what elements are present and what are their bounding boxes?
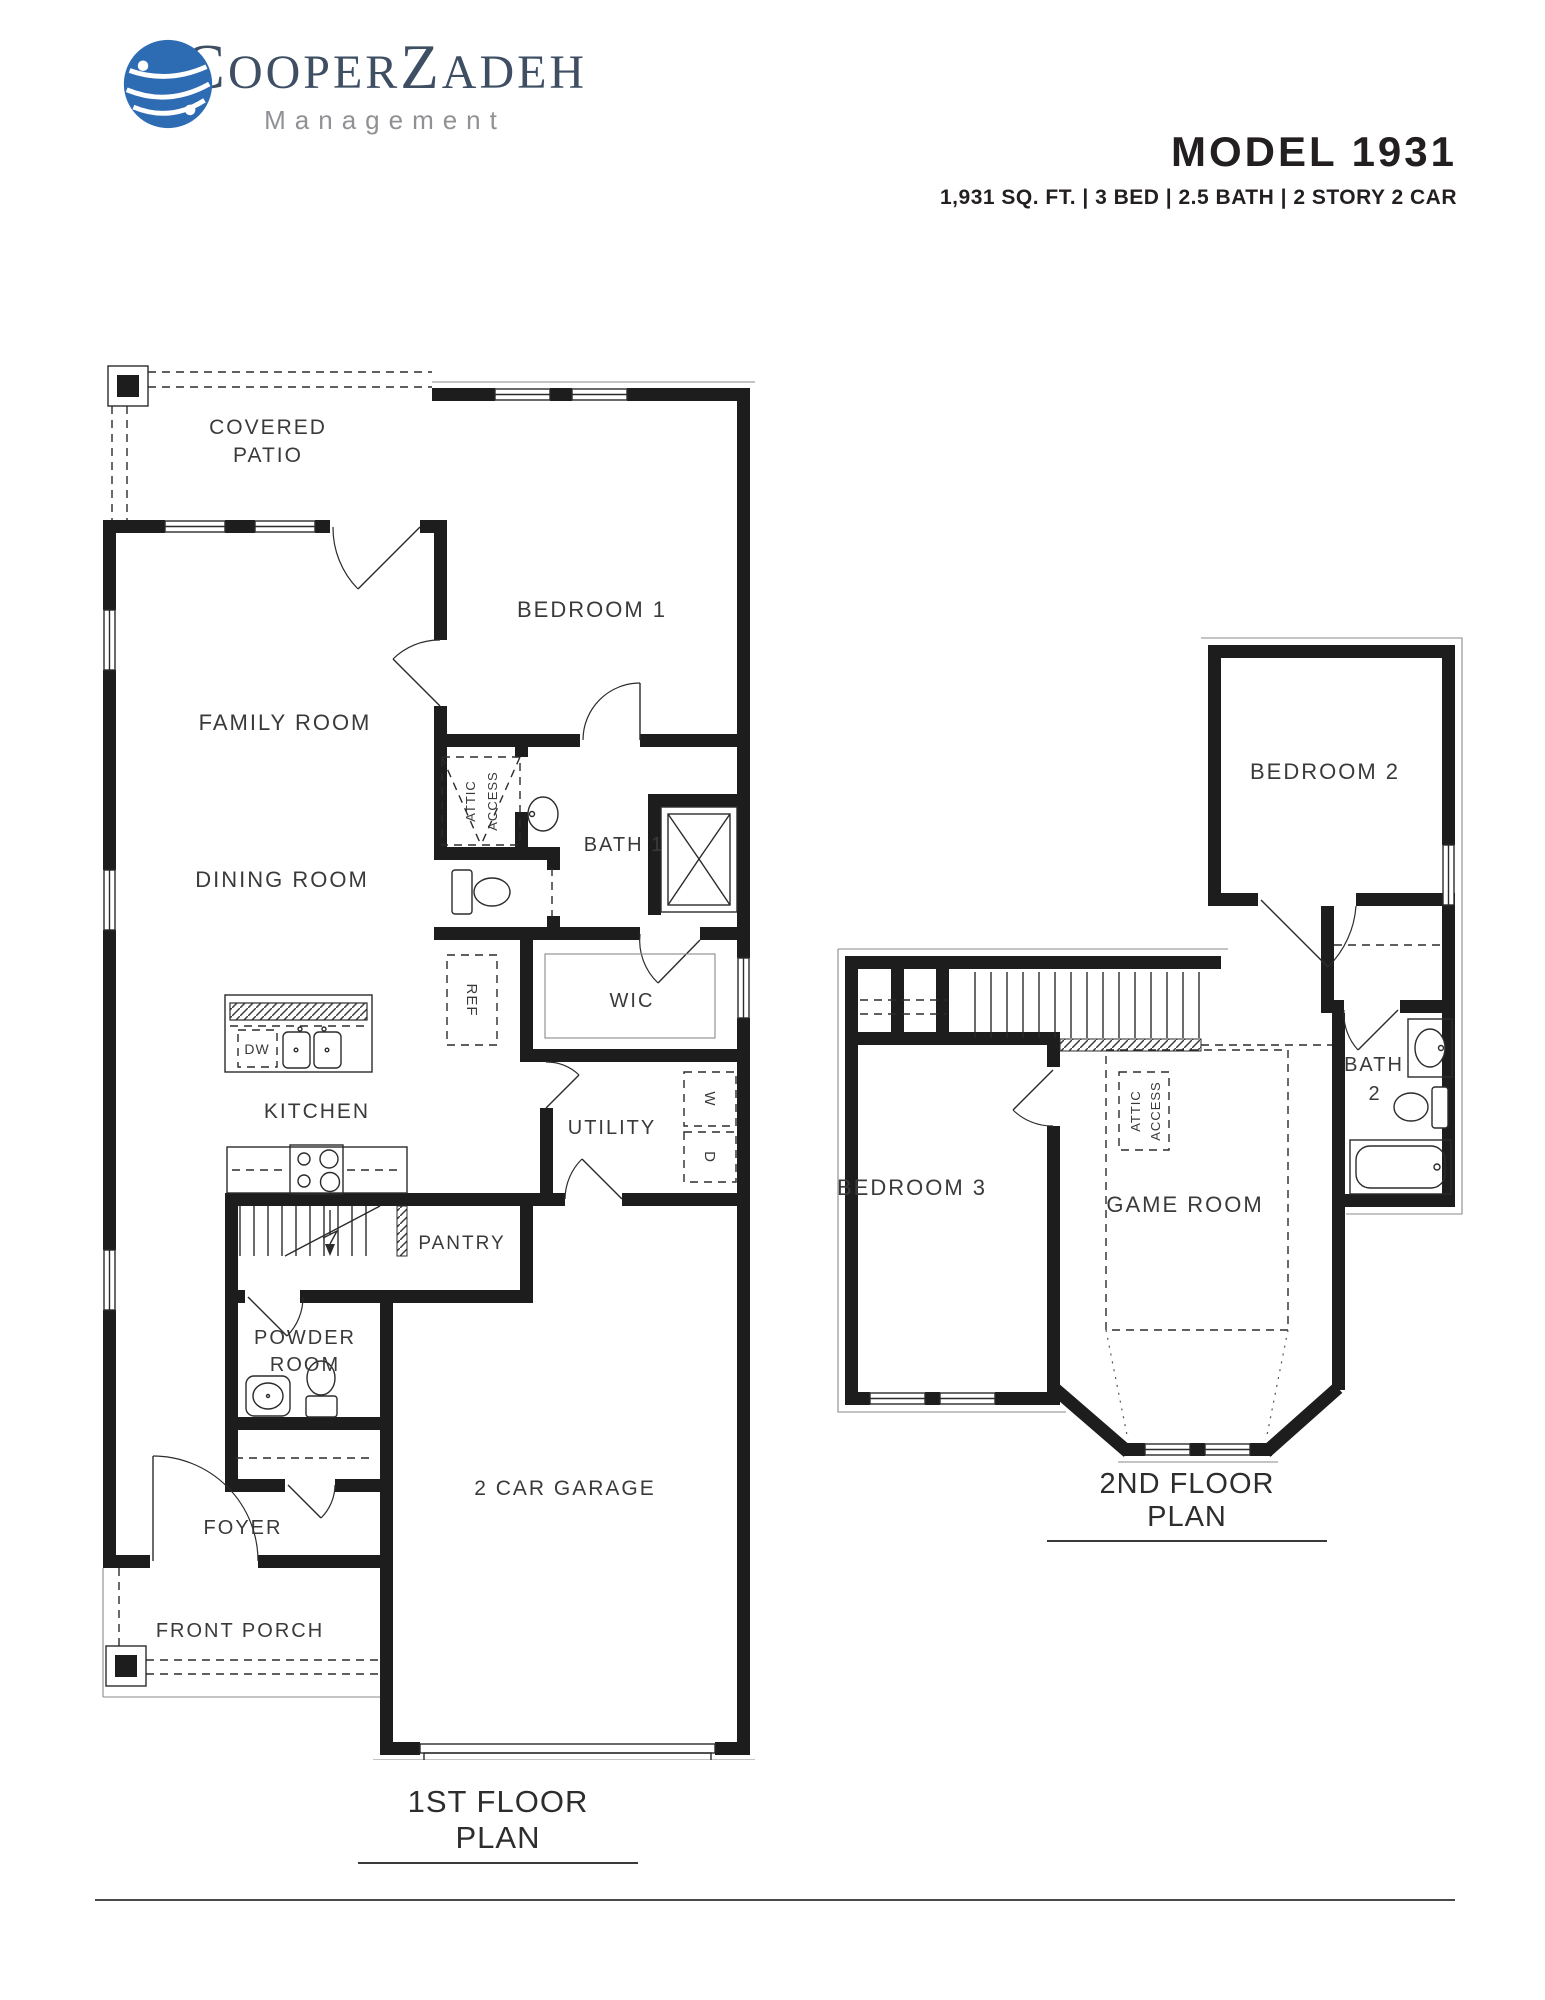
game-room-label: GAME ROOM	[1106, 1192, 1263, 1217]
window	[255, 521, 315, 532]
bedroom2-label: BEDROOM 2	[1250, 759, 1400, 784]
first-floor-plan-drawing: COVERED PATIO	[95, 355, 755, 1760]
dining-room-label: DINING ROOM	[195, 867, 369, 892]
front-porch-label: FRONT PORCH	[156, 1620, 324, 1642]
garage-entry-door	[565, 1159, 622, 1199]
attic-access-1-line1: ATTIC	[463, 780, 478, 822]
brand-adeh: ADEH	[442, 46, 587, 99]
covered-patio-label-line2: PATIO	[233, 444, 303, 467]
covered-patio-label-line1: COVERED	[209, 416, 327, 439]
model-title: MODEL 1931	[940, 128, 1457, 176]
window	[572, 389, 627, 400]
kitchen-island: DW	[225, 995, 372, 1072]
hall-door	[393, 640, 440, 706]
washer-label: W	[701, 1091, 718, 1106]
window	[1145, 1444, 1190, 1455]
stairs-first-floor	[240, 1206, 407, 1256]
footer-divider	[95, 1899, 1455, 1901]
window	[495, 389, 550, 400]
window	[1205, 1444, 1250, 1455]
brand-ooper: OOPER	[228, 46, 400, 99]
window	[1443, 845, 1454, 905]
first-floor-title-text: 1ST FLOOR PLAN	[358, 1784, 638, 1864]
attic-access-2-line2: ACCESS	[1148, 1081, 1163, 1140]
dishwasher-label: DW	[244, 1041, 269, 1057]
garage-door	[420, 1744, 715, 1760]
family-room-label: FAMILY ROOM	[199, 710, 372, 735]
front-door	[153, 1456, 258, 1561]
covered-patio: COVERED PATIO	[108, 366, 432, 520]
model-specs: 1,931 SQ. FT. | 3 BED | 2.5 BATH | 2 STO…	[940, 186, 1457, 210]
wic-label: WIC	[610, 990, 655, 1012]
garage-label: 2 CAR GARAGE	[474, 1477, 656, 1500]
window	[104, 1250, 115, 1310]
second-floor-title: 2ND FLOOR PLAN	[1047, 1468, 1327, 1542]
model-header: MODEL 1931 1,931 SQ. FT. | 3 BED | 2.5 B…	[940, 128, 1457, 210]
floor2-room-labels: BEDROOM 2 BEDROOM 3 GAME ROOM BATH 2	[837, 759, 1404, 1217]
bath1-label: BATH 1	[584, 834, 665, 856]
washer-box: W	[684, 1072, 736, 1126]
powder-room-label-line2: ROOM	[270, 1354, 340, 1376]
bath1-sink	[528, 797, 558, 831]
patio-door	[333, 527, 420, 589]
company-logo: COOPERZADEH Management	[120, 36, 650, 136]
bedroom1-door	[583, 683, 640, 740]
globe-icon	[120, 36, 216, 132]
second-floor-title-text: 2ND FLOOR PLAN	[1047, 1468, 1327, 1542]
attic-access-1: ATTIC ACCESS	[442, 757, 520, 845]
window	[165, 521, 225, 532]
bedroom1-label: BEDROOM 1	[517, 597, 667, 622]
window	[940, 1393, 995, 1404]
powder-room-label-line1: POWDER	[254, 1327, 356, 1349]
bath2-toilet	[1394, 1087, 1448, 1128]
window	[738, 958, 749, 1018]
range-counter	[227, 1145, 407, 1194]
floorplan-sheet: COOPERZADEH Management MODEL 1931 1,931 …	[0, 0, 1545, 2000]
pantry-label: PANTRY	[418, 1233, 505, 1254]
window	[104, 610, 115, 670]
bath1-toilet	[452, 870, 510, 914]
attic-access-2-line1: ATTIC	[1128, 1090, 1143, 1132]
window	[870, 1393, 925, 1404]
floor2-windows	[870, 845, 1454, 1455]
window	[104, 870, 115, 930]
bedroom3-label: BEDROOM 3	[837, 1175, 987, 1200]
dryer-label: D	[701, 1151, 718, 1163]
utility-door	[546, 1062, 579, 1108]
second-floor-plan-drawing: ATTIC ACCESS BEDROOM 2 BEDROOM 3 GAME RO…	[795, 615, 1465, 1495]
bath2-door	[1344, 1010, 1398, 1050]
bath2-label-line2: 2	[1368, 1083, 1381, 1105]
wic-door	[640, 934, 700, 983]
foyer-label: FOYER	[204, 1517, 283, 1539]
bath2-label-line1: BATH	[1344, 1054, 1404, 1076]
bedroom3-door	[1013, 1070, 1053, 1126]
attic-access-2: ATTIC ACCESS	[1119, 1072, 1169, 1150]
ref-label: REF	[463, 984, 480, 1017]
exterior-offset-lines	[103, 382, 755, 1760]
refrigerator: REF	[447, 955, 497, 1045]
kitchen-label: KITCHEN	[264, 1100, 370, 1123]
utility-label: UTILITY	[568, 1117, 656, 1139]
dryer-box: D	[684, 1132, 736, 1182]
coat-closet-door	[288, 1485, 335, 1518]
bath2-tub	[1350, 1140, 1451, 1194]
attic-access-1-line2: ACCESS	[485, 771, 500, 830]
floor1-walls	[103, 388, 750, 1755]
brand-initial-z: Z	[400, 32, 441, 102]
bath1-shower	[661, 807, 737, 912]
powder-sink	[246, 1376, 290, 1416]
bedroom2-door	[1261, 900, 1356, 967]
first-floor-title: 1ST FLOOR PLAN	[358, 1784, 638, 1864]
